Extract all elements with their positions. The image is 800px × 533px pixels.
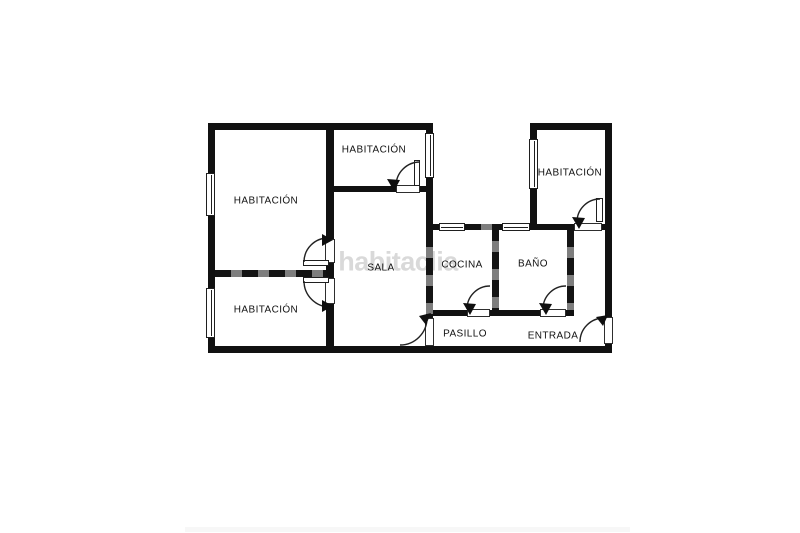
floor-plan: habitaclia	[0, 0, 800, 533]
room-label-entrance: ENTRADA	[528, 331, 579, 342]
living-room-hallway-door-arrow	[419, 313, 431, 325]
kitchen-door-arrow	[463, 303, 476, 315]
room-label-kitchen: COCINA	[441, 260, 482, 271]
bedroom-top-right-door-arrow	[572, 217, 585, 229]
bedroom-left-top-door-arrow	[322, 234, 333, 246]
room-label-hallway: PASILLO	[443, 329, 487, 340]
room-label-living-room: SALA	[367, 263, 394, 274]
room-label-bedroom-middle: HABITACIÓN	[342, 145, 406, 156]
bedroom-middle-door-arc	[396, 162, 420, 186]
room-label-bedroom-left-top: HABITACIÓN	[234, 196, 298, 207]
living-room-hallway-door-arc	[400, 318, 427, 345]
bedroom-middle-door-arrow	[387, 179, 400, 191]
room-label-bathroom: BAÑO	[518, 259, 548, 270]
door-swing-arcs	[0, 0, 800, 533]
bathroom-door-arrow	[539, 303, 552, 315]
room-label-bedroom-top-right: HABITACIÓN	[538, 168, 602, 179]
room-label-bedroom-left-bottom: HABITACIÓN	[234, 305, 298, 316]
bedroom-left-bottom-door-arrow	[322, 300, 333, 312]
entrance-door-arrow	[596, 315, 608, 326]
